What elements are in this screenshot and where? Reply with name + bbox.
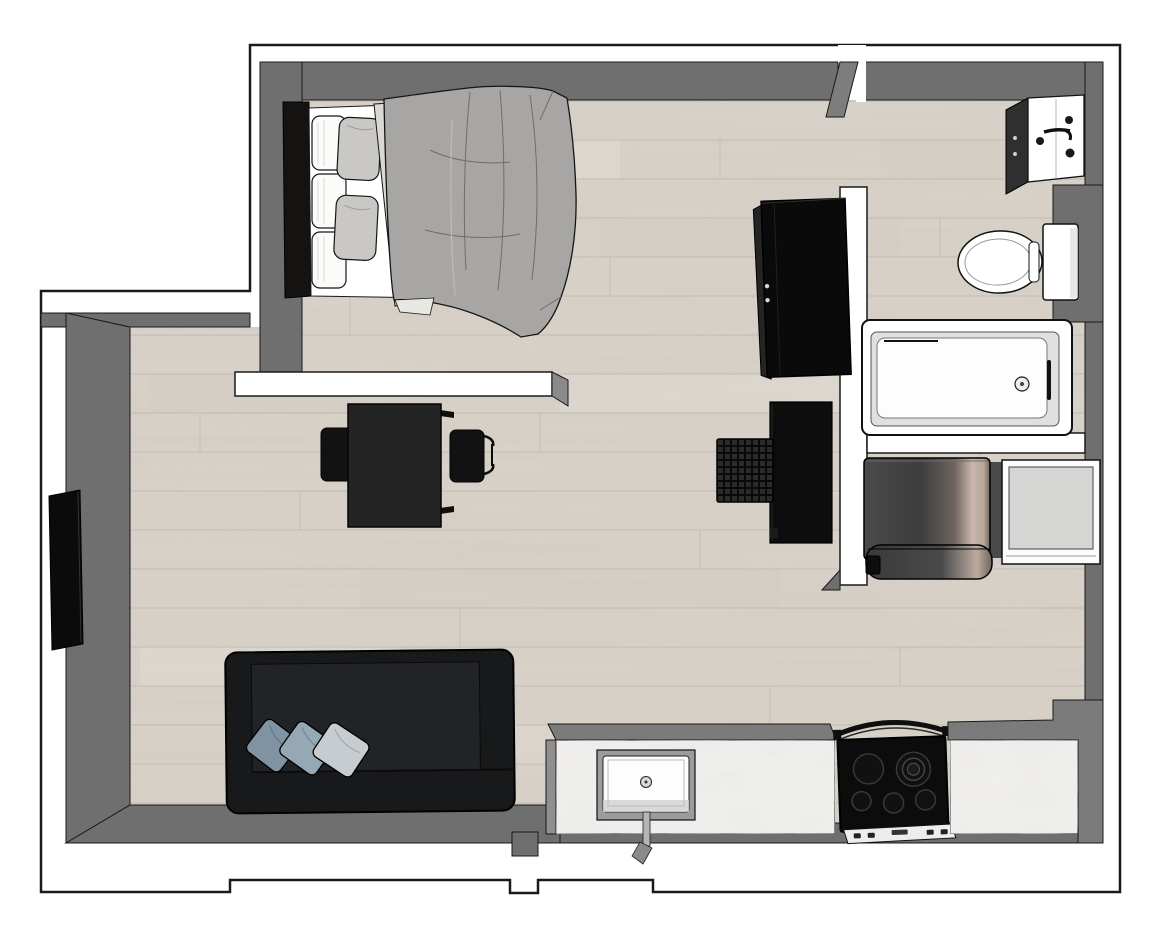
- bedroom-partition-wall: [235, 372, 552, 396]
- side-cabinet: Side cabinet: [770, 402, 832, 543]
- bottom-pier-face: [512, 832, 538, 856]
- kitchen-counter-right: Marble kitchen counter: [948, 700, 1103, 843]
- wardrobe: Black wardrobe: [753, 198, 851, 379]
- sheet-fold: [395, 298, 434, 315]
- stove: Five-burner stove: [833, 720, 956, 844]
- table-top: [348, 404, 441, 527]
- entry-door-gap: [838, 45, 866, 62]
- washing-machine: Washing machine: [864, 458, 1006, 579]
- tv: Wall-mounted TV: [49, 490, 83, 650]
- dryer: Dryer / appliance: [1002, 460, 1100, 564]
- floorplan-render: Double bed with gray duvet and pillows: [0, 0, 1173, 936]
- top-wall-right-face: [864, 62, 1103, 100]
- woven-basket: Woven basket: [717, 439, 773, 502]
- bathtub: Bathtub: [862, 320, 1072, 435]
- entry-door-gap-2: [856, 62, 866, 102]
- floorplan-page: Double bed with gray duvet and pillows: [0, 0, 1173, 936]
- headboard: [283, 102, 311, 298]
- sofa: Dark sofa with three cushions: [225, 649, 515, 813]
